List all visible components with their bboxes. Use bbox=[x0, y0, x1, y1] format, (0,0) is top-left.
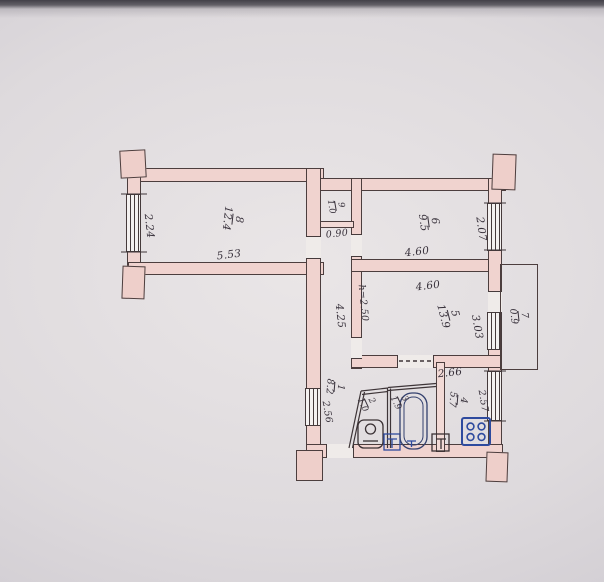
dim-kitchen-top: 2.66 bbox=[437, 366, 463, 381]
room-8-label: 812.4 bbox=[220, 206, 246, 233]
room-6-label: 69.5 bbox=[416, 212, 442, 233]
kitchen-number: 4 bbox=[457, 395, 469, 406]
closet-area: 1.0 bbox=[325, 199, 336, 215]
room-8-area: 12.4 bbox=[220, 206, 234, 232]
room-6-area: 9.5 bbox=[416, 213, 429, 232]
balcony-label: 70.9 bbox=[507, 307, 530, 325]
hall-area: 8.2 bbox=[323, 378, 334, 395]
bath-sink-icon bbox=[384, 434, 400, 450]
kitchen-label: 45.7 bbox=[446, 391, 469, 409]
stove-icon bbox=[462, 418, 490, 445]
dim-room6-width: 4.60 bbox=[404, 245, 430, 260]
balcony-area: 0.9 bbox=[507, 308, 519, 325]
kitchen-sink-icon bbox=[432, 434, 449, 451]
dim-corridor-length: 4.25 bbox=[333, 303, 348, 329]
floor-plan-photo: 812.4 91.0 69.5 513.9 70.9 18.2 21.0 31.… bbox=[0, 0, 604, 582]
toilet-icon bbox=[358, 420, 383, 448]
hall-label: 18.2 bbox=[323, 378, 346, 396]
dim-room8-depth: 2.24 bbox=[142, 213, 157, 239]
dim-closet-width: 0.90 bbox=[325, 227, 348, 240]
kitchen-area: 5.7 bbox=[446, 391, 457, 408]
hall-number: 1 bbox=[334, 382, 346, 393]
fixtures-layer bbox=[0, 0, 604, 582]
